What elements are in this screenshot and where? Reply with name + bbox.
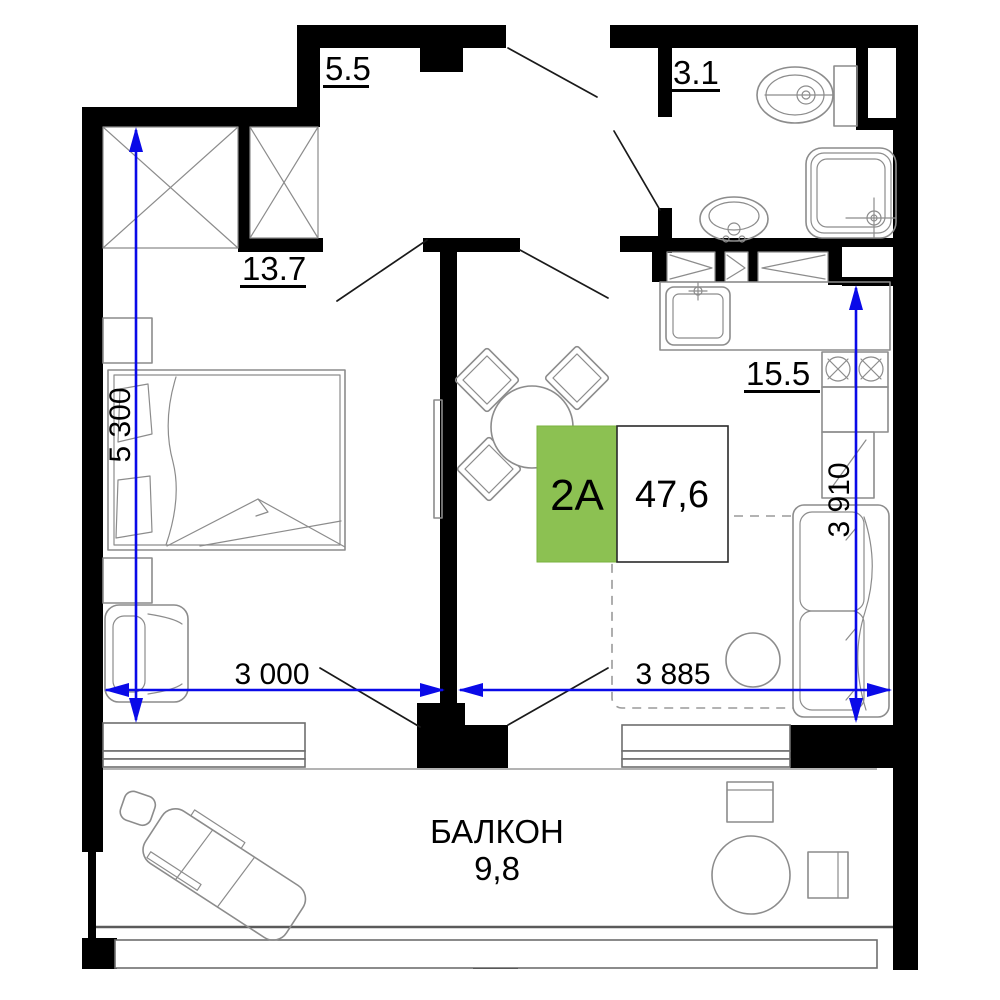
door-swings xyxy=(320,48,660,727)
balcony-name-label: БАЛКОН xyxy=(430,813,564,850)
wall-left xyxy=(82,107,103,768)
hallway-label-underline xyxy=(323,85,369,88)
bedroom-area-label: 13.7 xyxy=(242,250,306,287)
blanket-fold xyxy=(167,499,345,547)
bedroom-label-underline xyxy=(240,285,306,288)
bathroom-label-underline xyxy=(671,89,720,92)
wall-closet-divider xyxy=(238,127,250,250)
living-window-sill2 xyxy=(622,759,790,767)
wall-window-right-block xyxy=(790,725,900,768)
balcony-lounge-chair xyxy=(100,773,315,946)
bedroom-window-sill xyxy=(103,751,305,759)
kitchen-sink xyxy=(666,283,730,345)
bathroom-area-label: 3.1 xyxy=(673,54,719,91)
pillow xyxy=(116,476,152,538)
dimension-left-height: 5 300 xyxy=(104,127,143,723)
balcony-area-label: 9,8 xyxy=(474,850,520,887)
entry-door-swing xyxy=(508,48,597,97)
wardrobe-right xyxy=(250,127,318,238)
double-bed xyxy=(108,370,345,550)
floor-plan-svg: 5 300 3 910 3 000 3 885 5.5 3.1 13.7 15. xyxy=(0,0,1000,1000)
badge-code-label: 2A xyxy=(550,471,604,520)
kitchen-label-underline xyxy=(744,390,820,393)
bedroom-furniture xyxy=(103,127,442,702)
duct-shaft xyxy=(868,48,896,118)
kitchen-area-label: 15.5 xyxy=(746,355,810,392)
balcony-chair xyxy=(808,852,848,898)
blanket-edge xyxy=(166,377,176,545)
balcony-table xyxy=(712,836,790,914)
bedroom-door-swing xyxy=(337,240,427,301)
nightstand-bottom xyxy=(103,558,152,603)
wall-hall-top xyxy=(297,25,506,48)
wall-top-right xyxy=(610,25,918,48)
living-door-swing xyxy=(520,250,608,298)
wall-closet-sep1 xyxy=(715,252,725,282)
wall-balcony-left-thin xyxy=(88,852,96,942)
living-window xyxy=(622,725,790,751)
bedroom-window-sill2 xyxy=(103,759,305,767)
wall-center-stub xyxy=(423,238,520,252)
shower-cabin xyxy=(806,148,896,238)
dimension-bedroom-width: 3 000 xyxy=(104,658,445,697)
arrow-up-icon xyxy=(129,127,143,152)
nightstand-top xyxy=(103,318,152,363)
unit-badge: 2A 47,6 xyxy=(537,426,728,562)
dimension-label: 3 000 xyxy=(234,658,309,691)
utility-closet xyxy=(667,252,828,282)
wall-center-pier xyxy=(417,703,508,768)
wall-top-left xyxy=(82,107,297,127)
wall-balcony-bl-pier xyxy=(82,938,117,969)
balcony-door-swing-left xyxy=(320,668,420,727)
dimension-label: 3 910 xyxy=(823,462,856,537)
hallway-area-label: 5.5 xyxy=(325,50,371,87)
toilet xyxy=(757,66,857,126)
arrow-up-icon xyxy=(849,285,863,310)
living-window-sill xyxy=(622,751,790,759)
wash-basin xyxy=(700,197,768,242)
bathroom-door-swing xyxy=(614,131,660,210)
wall-kitchen-niche-top xyxy=(842,238,896,247)
bedroom-window xyxy=(103,723,305,751)
balcony-door-swing-right xyxy=(508,668,608,725)
dimension-label: 5 300 xyxy=(104,387,137,462)
balcony-glazing xyxy=(115,940,877,968)
wall-closet-sep2 xyxy=(748,252,758,282)
floor-plan-page: 5 300 3 910 3 000 3 885 5.5 3.1 13.7 15. xyxy=(0,0,1000,1000)
wardrobe-left xyxy=(103,127,238,248)
ottoman xyxy=(726,633,780,687)
arrow-left-icon xyxy=(458,683,483,697)
wall-balcony-left xyxy=(82,768,103,852)
arrow-down-icon xyxy=(129,698,143,723)
badge-area-label: 47,6 xyxy=(635,474,709,516)
arrow-left-icon xyxy=(104,683,129,697)
balcony-chair xyxy=(727,782,773,822)
wall-kitchen-niche-left xyxy=(828,238,842,285)
wall-notch xyxy=(420,48,463,72)
wall-closet-jamb xyxy=(652,236,667,282)
wall-bath-left-top xyxy=(658,48,672,117)
dimension-label: 3 885 xyxy=(635,658,710,691)
